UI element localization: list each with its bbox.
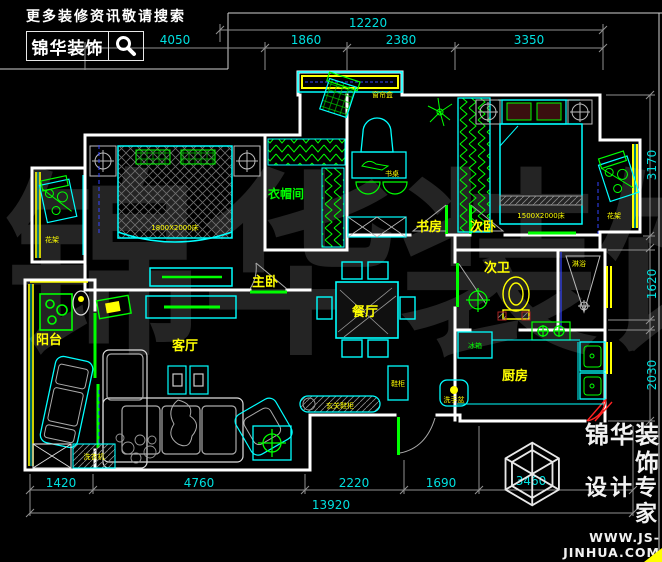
wardrobe [458, 98, 490, 232]
footer-brand: 锦华装饰 [570, 421, 660, 476]
coffee-table [168, 366, 208, 394]
closet-rack [268, 139, 345, 165]
dim-right-seg3: 2030 [645, 360, 659, 391]
dim-top-seg4: 3350 [514, 33, 545, 47]
plant-label: 花架 [45, 235, 59, 244]
bench [97, 295, 132, 318]
second-bath: 次卫 淋浴 [466, 252, 600, 328]
pillow [181, 150, 215, 164]
bedside-lamp [568, 100, 592, 124]
basin-label: 洗手盆 [444, 395, 465, 404]
floor-drain-icon [466, 288, 490, 312]
room-label-dining: 餐厅 [351, 304, 378, 320]
header-brand-block: 更多装修资讯敬请搜索 锦华装饰 [26, 6, 186, 61]
magnifier-icon [109, 32, 143, 60]
fridge-label: 冰箱 [468, 341, 482, 350]
brand-logo-box: 锦华装饰 [26, 31, 144, 61]
dim-top-seg3: 2380 [386, 33, 417, 47]
room-label-second-bedroom: 次卧 [470, 219, 496, 235]
shoe-cabinet-label: 玄关鞋柜 [326, 401, 354, 410]
room-label-second-bath: 次卫 [484, 260, 510, 276]
second-bedroom: 1500X2000床 次卧 [458, 98, 598, 235]
desk-label: 书桌 [385, 169, 399, 178]
left-plant-bay: 花架 [39, 175, 77, 244]
red-door-icon [587, 399, 612, 421]
washer-label: 洗衣机 [84, 452, 105, 461]
basin-icon [73, 291, 89, 315]
chair [361, 118, 393, 152]
dim-bottom-seg4: 1690 [426, 476, 457, 490]
brand-name: 锦华装饰 [27, 32, 109, 60]
bed-size-label: 1800X2000床 [151, 223, 198, 232]
header-tagline: 更多装修资讯敬请搜索 [26, 6, 186, 26]
plant-icon [428, 98, 452, 126]
entry: 玄关鞋柜 鞋柜 洗手盆 [300, 366, 468, 412]
room-label-kitchen: 厨房 [502, 368, 528, 384]
cube-logo-icon [500, 434, 564, 514]
room-label-master: 主卧 [252, 274, 278, 290]
room-label-cloakroom: 衣帽间 [268, 186, 304, 201]
master-bedroom: 1800X2000床 主卧 [90, 145, 278, 290]
dim-bottom-seg1: 1420 [46, 476, 77, 490]
lounge-chair [39, 355, 94, 449]
pillow [136, 150, 170, 164]
room-label-living: 客厅 [172, 338, 198, 354]
dim-right-seg1: 3170 [645, 150, 659, 181]
nightstand [234, 146, 260, 176]
second-bed [500, 124, 582, 224]
closet-rack [322, 168, 344, 247]
pouf [356, 182, 380, 194]
dim-right-seg2: 1620 [645, 269, 659, 300]
dining: 餐厅 [317, 262, 415, 357]
kitchen: 冰箱 厨房 [457, 322, 605, 404]
sofa [103, 350, 243, 468]
footer-website: WWW.JS-JINHUA.COM [500, 530, 660, 560]
plant-label: 花架 [607, 211, 621, 220]
dim-bottom-seg2: 4760 [184, 476, 215, 490]
plant-icon [171, 400, 197, 446]
shower-label: 淋浴 [572, 259, 586, 268]
room-label-study: 书房 [416, 219, 442, 235]
plant-icon [40, 294, 72, 330]
dim-top-overall: 12220 [349, 16, 387, 30]
dim-top-seg2: 1860 [291, 33, 322, 47]
hall-cabinet-label: 鞋柜 [391, 379, 405, 388]
bay-chair: 窗帘盒 [318, 72, 393, 118]
cloakroom: 衣帽间 [268, 139, 345, 247]
sink-icon [580, 342, 605, 399]
plant-icon [599, 151, 627, 169]
footer-slogan: 设计专家 [570, 476, 660, 527]
pouf [383, 182, 407, 194]
desk-lamp-icon [362, 161, 388, 170]
nightstand [90, 146, 116, 176]
dim-bottom-overall: 13920 [312, 498, 350, 512]
pillow [537, 103, 561, 120]
bed-size-label: 1500X2000床 [517, 211, 564, 220]
plant-icon [41, 176, 69, 191]
footer-logo-block: 锦华装饰 设计专家 WWW.JS-JINHUA.COM [500, 421, 660, 560]
study: 书桌 书房 [348, 98, 452, 237]
cad-floorplan-screenshot: 锦 华 装 饰 更多装修资讯敬请搜索 锦华装饰 [0, 0, 662, 562]
living: 客厅 [97, 295, 315, 468]
pillow [507, 103, 531, 120]
corner-triangle [644, 548, 662, 562]
room-label-balcony: 阳台 [36, 332, 62, 348]
curtain-box-label: 窗帘盒 [372, 90, 393, 99]
dim-bottom-seg3: 2220 [339, 476, 370, 490]
